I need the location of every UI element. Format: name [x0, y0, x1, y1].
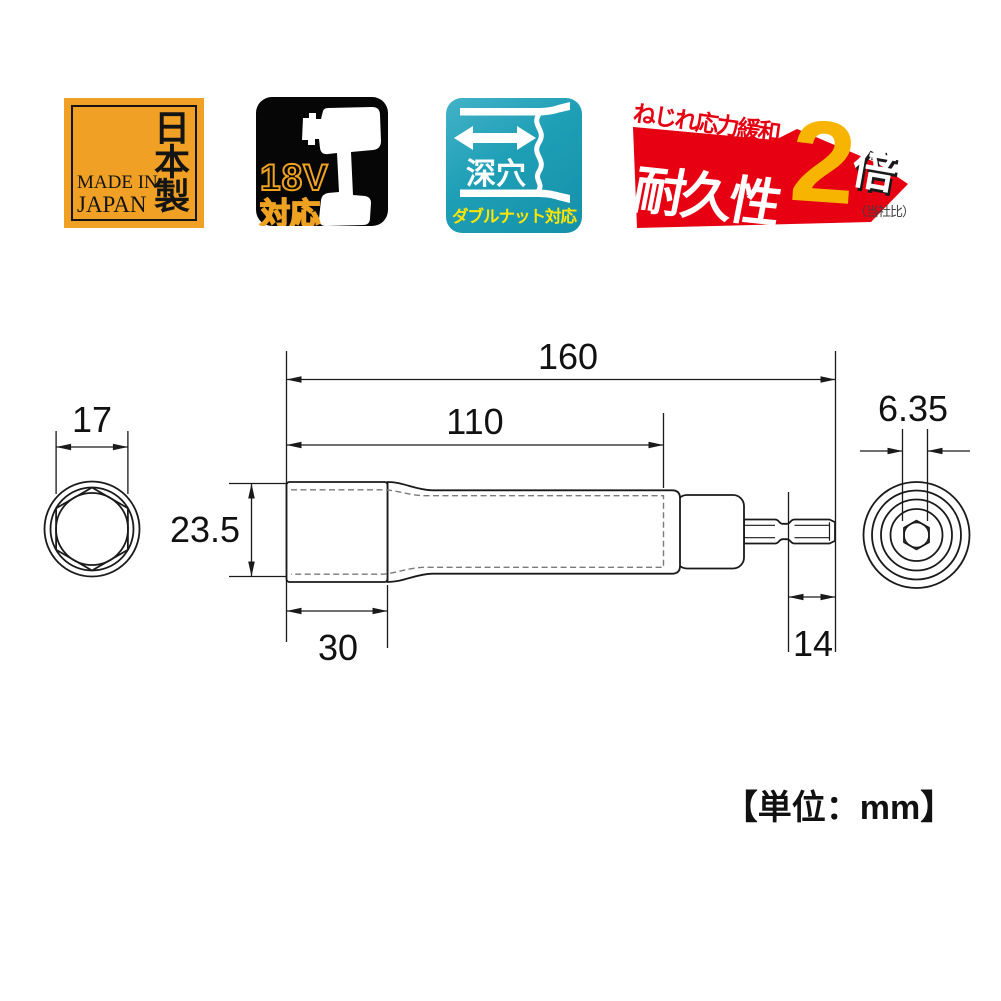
dim-label-14: 14	[793, 623, 833, 664]
socket-side-view	[287, 482, 836, 582]
socket-head	[287, 482, 388, 582]
dim-label-23-5: 23.5	[170, 509, 240, 550]
dim-label-30: 30	[318, 627, 358, 668]
dim-label-17: 17	[72, 399, 112, 440]
page: 日本製 MADE IN JAPAN 18V 対応 深穴 ダブルナット対応	[0, 0, 1001, 1001]
technical-drawing: 17	[0, 0, 1001, 1001]
shank-collar	[676, 495, 744, 569]
unit-label: 【単位：mm】	[724, 789, 954, 827]
dim-shank-hex	[860, 429, 970, 521]
shank-end-view	[864, 482, 970, 588]
dim-label-110: 110	[446, 401, 503, 442]
dim-label-160: 160	[538, 336, 598, 377]
hex-shank	[744, 520, 835, 544]
dim-label-6-35: 6.35	[878, 388, 948, 429]
socket-front-view	[45, 482, 140, 577]
dim-hex-opening	[56, 431, 128, 494]
